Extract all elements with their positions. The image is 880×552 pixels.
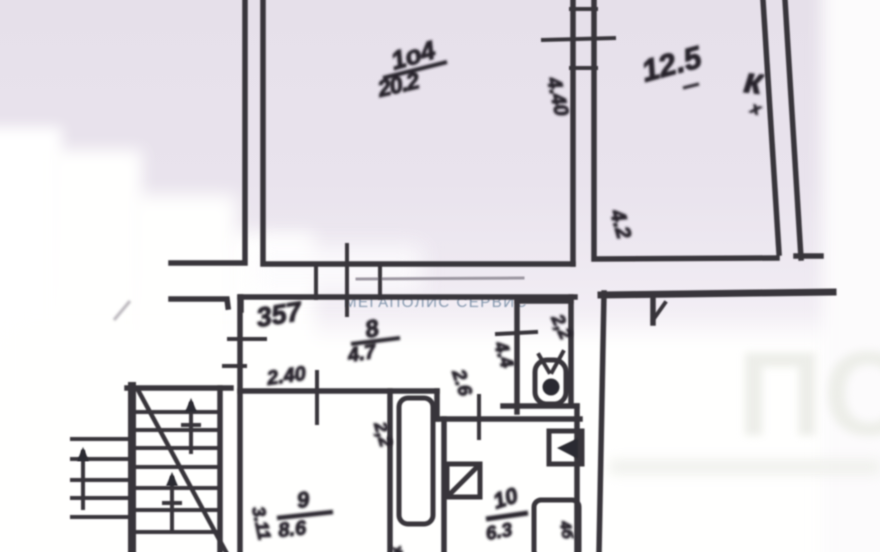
svg-text:9: 9 xyxy=(295,486,311,513)
svg-text:12.5: 12.5 xyxy=(638,39,706,89)
svg-text:2.40: 2.40 xyxy=(265,363,308,390)
svg-text:3.11: 3.11 xyxy=(248,505,275,542)
svg-text:4б: 4б xyxy=(556,519,576,541)
svg-text:к: к xyxy=(742,59,766,102)
svg-text:4.4: 4.4 xyxy=(489,338,518,371)
svg-text:4.7: 4.7 xyxy=(345,341,378,367)
svg-text:4.2: 4.2 xyxy=(605,206,636,242)
svg-text:8.6: 8.6 xyxy=(277,517,308,542)
svg-text:10: 10 xyxy=(490,482,522,514)
svg-text:4.40: 4.40 xyxy=(542,74,572,118)
svg-text:357: 357 xyxy=(254,296,305,333)
svg-text:6.3: 6.3 xyxy=(484,520,514,545)
svg-text:х: х xyxy=(748,99,764,119)
svg-text:2.6: 2.6 xyxy=(447,366,476,399)
svg-text:20.2: 20.2 xyxy=(374,67,422,102)
